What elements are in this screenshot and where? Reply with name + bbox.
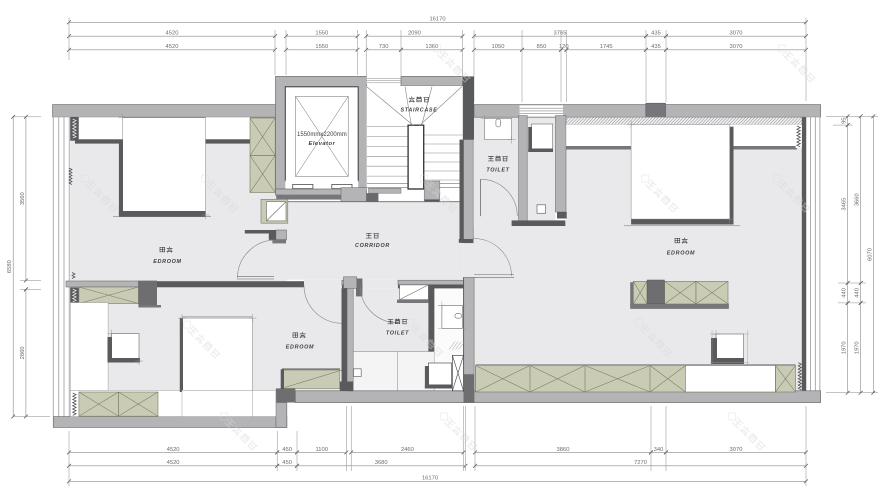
- svg-text:TOILET: TOILET: [486, 168, 509, 174]
- svg-text:1050: 1050: [492, 44, 505, 50]
- svg-text:EDROOM: EDROOM: [153, 259, 181, 265]
- svg-text:STAIRCASE: STAIRCASE: [400, 108, 437, 114]
- svg-text:435: 435: [651, 31, 661, 37]
- svg-text:7270: 7270: [634, 460, 647, 466]
- svg-text:3765: 3765: [554, 31, 567, 37]
- svg-text:440: 440: [855, 288, 861, 298]
- svg-text:1550: 1550: [315, 44, 328, 50]
- svg-text:3070: 3070: [730, 31, 743, 37]
- svg-text:6070: 6070: [867, 248, 873, 261]
- svg-text:4520: 4520: [166, 44, 179, 50]
- svg-text:3560: 3560: [20, 192, 26, 205]
- svg-text:2460: 2460: [401, 447, 414, 453]
- svg-text:1970: 1970: [855, 341, 861, 354]
- svg-text:4520: 4520: [166, 31, 179, 37]
- svg-text:1550mmx2200mm: 1550mmx2200mm: [297, 132, 347, 138]
- svg-text:4520: 4520: [167, 460, 180, 466]
- svg-text:3860: 3860: [557, 447, 570, 453]
- svg-text:1550: 1550: [315, 31, 328, 37]
- svg-text:16170: 16170: [429, 16, 445, 22]
- svg-text:3680: 3680: [375, 460, 388, 466]
- svg-text:450: 450: [282, 460, 292, 466]
- svg-text:3070: 3070: [730, 44, 743, 50]
- svg-text:730: 730: [379, 44, 389, 50]
- svg-text:3465: 3465: [842, 198, 848, 211]
- svg-text:TOILET: TOILET: [386, 331, 409, 337]
- svg-text:3070: 3070: [730, 447, 743, 453]
- svg-text:1100: 1100: [315, 447, 327, 453]
- svg-text:16170: 16170: [422, 475, 438, 481]
- svg-text:850: 850: [537, 44, 547, 50]
- svg-text:2860: 2860: [20, 346, 26, 359]
- svg-text:1745: 1745: [600, 44, 613, 50]
- svg-text:95: 95: [842, 117, 848, 123]
- svg-text:EDROOM: EDROOM: [667, 251, 695, 257]
- svg-text:340: 340: [654, 447, 664, 453]
- svg-text:4520: 4520: [167, 447, 180, 453]
- svg-text:EDROOM: EDROOM: [286, 345, 314, 351]
- svg-text:CORRIDOR: CORRIDOR: [355, 243, 390, 249]
- svg-text:435: 435: [651, 44, 661, 50]
- svg-text:Elevator: Elevator: [308, 141, 335, 147]
- svg-text:450: 450: [282, 447, 292, 453]
- svg-text:2090: 2090: [408, 31, 421, 37]
- svg-text:1970: 1970: [842, 341, 848, 354]
- svg-text:6580: 6580: [7, 260, 13, 273]
- svg-text:3660: 3660: [855, 193, 861, 206]
- svg-text:440: 440: [842, 288, 848, 298]
